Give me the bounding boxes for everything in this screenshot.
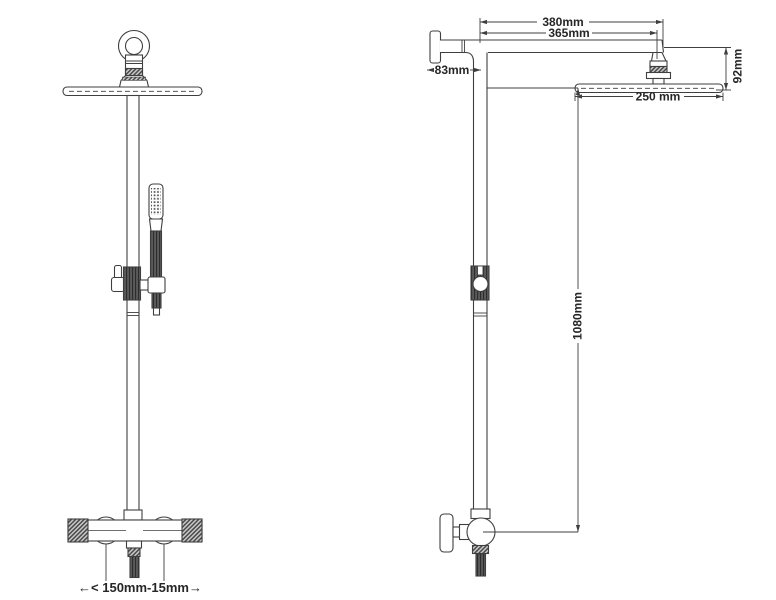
dim-inlet-spacing-label: ←< 150mm-15mm→ — [78, 580, 202, 595]
valve-outlet-front — [130, 557, 139, 578]
slider-bracket-side — [471, 266, 489, 300]
dim-83-label: 83mm — [435, 63, 470, 77]
drawing-svg: ←< 150mm-15mm→ — [0, 0, 776, 600]
hand-shower-holder — [140, 277, 165, 293]
hand-shower — [149, 184, 163, 278]
dim-250-label: 250 mm — [636, 90, 681, 104]
valve-inlet-left — [68, 519, 88, 542]
spray-face — [151, 188, 161, 215]
dim-365-label: 365mm — [548, 26, 589, 40]
hand-shower-handle — [151, 231, 162, 278]
swivel-connector — [647, 53, 671, 85]
wall-flange — [430, 31, 441, 63]
valve-wall-plate — [440, 514, 453, 552]
diverter-knob — [112, 266, 125, 292]
mixer-valve-front — [68, 517, 202, 578]
front-view — [63, 31, 202, 578]
dim-1080-label: 1080mm — [571, 292, 585, 340]
hose-connector — [152, 293, 161, 315]
valve-inlet-right — [182, 519, 202, 542]
dim-1080: 1080mm — [483, 88, 585, 532]
valve-outlet-side — [476, 554, 486, 576]
shower-technical-drawing: ←< 150mm-15mm→ — [0, 0, 776, 600]
head-connector-front — [120, 55, 149, 87]
riser-pipe-front — [124, 96, 142, 521]
mixer-valve-side — [440, 514, 495, 576]
overhead-shower-front — [63, 87, 202, 96]
dim-83: 83mm — [427, 63, 481, 77]
slider-bracket-front — [124, 267, 141, 300]
dim-92-label: 92mm — [731, 49, 745, 84]
